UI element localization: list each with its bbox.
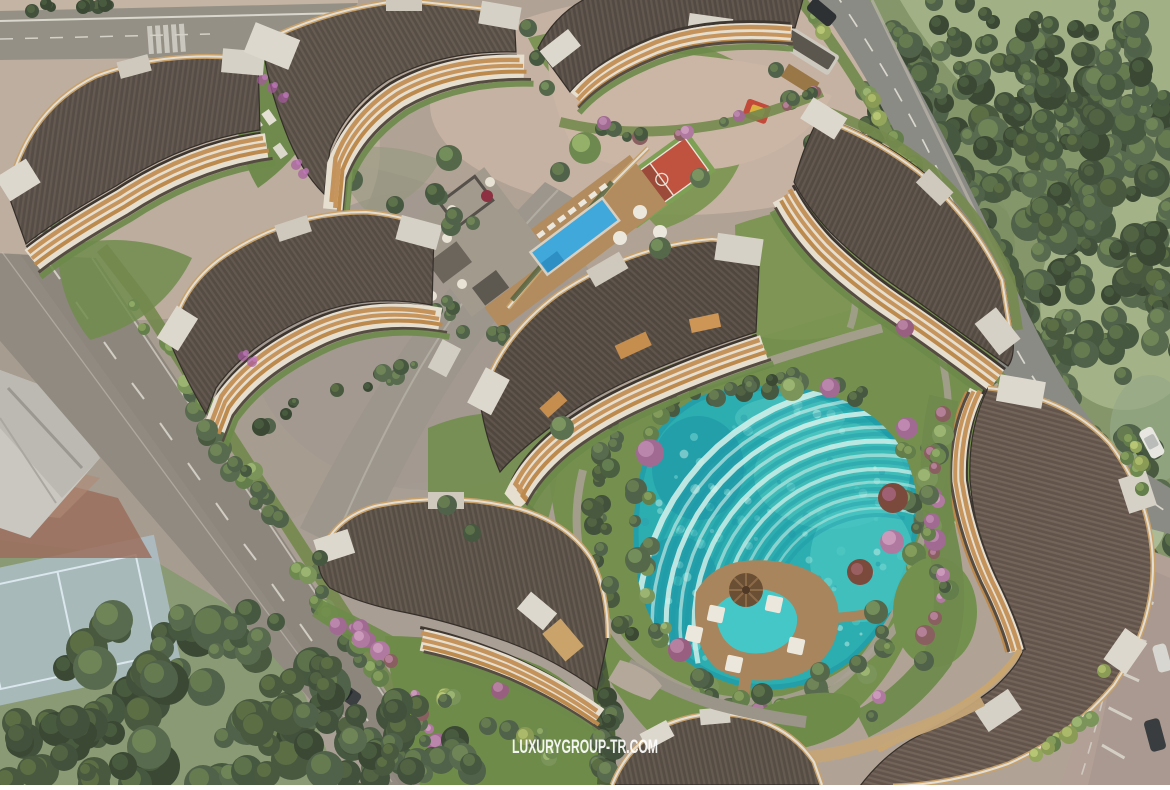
svg-text:LUXURYGROUP-TR.COM: LUXURYGROUP-TR.COM (512, 737, 658, 758)
